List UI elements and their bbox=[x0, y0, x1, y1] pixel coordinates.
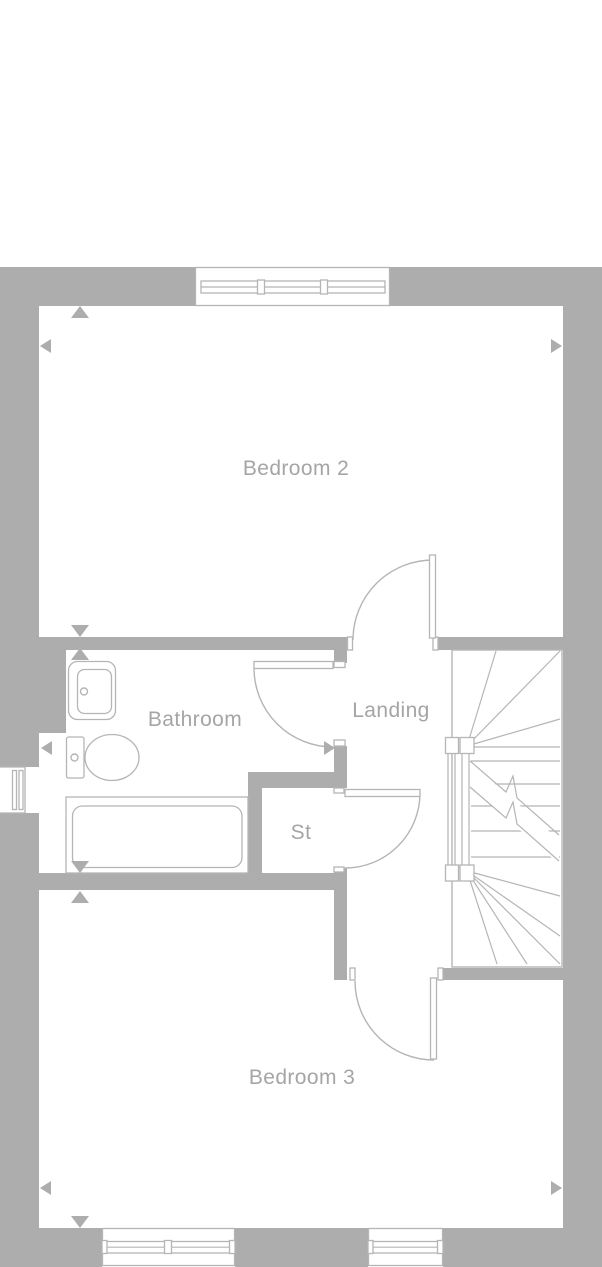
staircase bbox=[446, 650, 563, 967]
bedroom2-door-jamb-right bbox=[433, 637, 438, 650]
bottom-wall-mid-segment bbox=[235, 1228, 368, 1267]
floorplan-drawing: Bedroom 2 Bathroom Landing St Bedroom 3 bbox=[0, 0, 602, 1267]
bedroom3-window-small bbox=[368, 1229, 443, 1266]
doors bbox=[254, 555, 437, 1060]
bathroom-fixtures bbox=[66, 662, 248, 874]
bedroom3-door-jamb-left bbox=[350, 968, 355, 980]
top-wall-left-segment bbox=[0, 267, 195, 306]
toilet-bowl bbox=[85, 735, 139, 781]
bottom-wall-right-segment bbox=[443, 1228, 602, 1267]
bedroom2-dim-arrow-down bbox=[71, 625, 89, 637]
bedroom3-dim-arrow-up bbox=[71, 891, 89, 903]
landing-label: Landing bbox=[352, 699, 430, 722]
bathtub-inner bbox=[73, 806, 243, 868]
bathroom-door-jamb-top bbox=[334, 662, 345, 668]
stairs-newel-top-inner bbox=[460, 738, 474, 754]
storage-west-wall bbox=[248, 772, 262, 890]
stairs-break-symbol bbox=[470, 761, 559, 864]
top-wall-right-segment bbox=[390, 267, 602, 306]
bedroom3-window-small-endcap-left bbox=[368, 1241, 373, 1254]
bedroom3-door bbox=[355, 978, 437, 1060]
bathroom-dim-arrow-left bbox=[41, 741, 52, 755]
bathroom-label: Bathroom bbox=[148, 708, 242, 731]
toilet-icon bbox=[67, 735, 140, 781]
stairs-top-winders bbox=[467, 651, 560, 747]
bedroom3-door-leaf bbox=[431, 978, 437, 1059]
bedroom2-dim-arrow-left bbox=[40, 339, 51, 353]
bathroom-west-thick-wall bbox=[39, 637, 66, 733]
bedroom2-door-leaf bbox=[430, 555, 436, 638]
bedroom3-dim-arrow-right bbox=[551, 1181, 562, 1195]
left-wall-upper bbox=[0, 306, 39, 767]
stairs-bottom-wall bbox=[443, 968, 563, 980]
sink-basin-outline bbox=[78, 670, 112, 714]
bedroom2-door-swing-arc bbox=[353, 560, 433, 640]
toilet-cistern bbox=[67, 737, 85, 778]
bedroom2-divider-wall-left bbox=[0, 637, 352, 650]
stairs-newel-top-outer bbox=[446, 738, 459, 754]
bedroom3-dim-arrow-left bbox=[40, 1181, 51, 1195]
bathroom-st-middle-stub bbox=[334, 746, 347, 788]
bedroom3-door-swing-arc bbox=[355, 981, 434, 1060]
door-jambs bbox=[334, 637, 443, 980]
bathroom-window-glazing-2 bbox=[19, 771, 23, 810]
bedroom3-window-large-endcap-left bbox=[102, 1241, 107, 1254]
bedroom2-window-mullion-1 bbox=[258, 280, 265, 294]
bedroom3-window-large-mullion bbox=[165, 1241, 172, 1254]
stairs-bottom-winders bbox=[467, 871, 560, 964]
storage-door-swing-arc bbox=[345, 793, 420, 868]
bedroom3-door-jamb-right bbox=[438, 968, 443, 980]
bedroom3-window-large bbox=[102, 1229, 235, 1266]
stairs-handrails bbox=[446, 738, 475, 882]
bathtub-icon bbox=[66, 797, 248, 873]
bedroom3-window-small-endcap-right bbox=[438, 1241, 444, 1254]
bedroom3-dim-arrow-down bbox=[71, 1216, 89, 1228]
stairs-newel-bottom-inner bbox=[460, 865, 474, 881]
bedroom3-window-large-endcap-right bbox=[230, 1241, 236, 1254]
bottom-wall-left-segment bbox=[0, 1228, 102, 1267]
bedroom2-window bbox=[196, 268, 390, 306]
bathroom-door-swing-arc bbox=[254, 668, 333, 747]
storage-door-jamb-top bbox=[334, 788, 344, 793]
bedroom3-label: Bedroom 3 bbox=[249, 1066, 355, 1089]
bathroom-window-glazing-1 bbox=[13, 771, 17, 810]
storage-door-leaf bbox=[345, 790, 420, 797]
right-wall bbox=[563, 306, 602, 1267]
floorplan-canvas: Bedroom 2 Bathroom Landing St Bedroom 3 bbox=[0, 0, 602, 1267]
bedroom2-divider-wall-right bbox=[433, 637, 563, 650]
storage-door bbox=[345, 790, 420, 869]
bedroom2-window-mullion-2 bbox=[321, 280, 328, 294]
storage-door-jamb-bottom bbox=[334, 867, 344, 872]
bathroom-door bbox=[254, 662, 333, 748]
stairs-newel-bottom-outer bbox=[446, 865, 459, 881]
bedroom2-dim-arrow-right bbox=[551, 339, 562, 353]
sink-icon bbox=[69, 662, 116, 720]
bathroom-bottom-wall bbox=[0, 873, 347, 890]
bedroom2-door bbox=[353, 555, 436, 640]
bedroom2-dim-arrow-up bbox=[71, 306, 89, 318]
bathroom-door-jamb-bottom bbox=[334, 740, 345, 746]
storage-label: St bbox=[291, 821, 312, 844]
bathroom-window bbox=[0, 767, 25, 813]
bedroom2-label: Bedroom 2 bbox=[243, 457, 349, 480]
bathroom-door-leaf bbox=[254, 662, 333, 669]
bedroom2-door-jamb-left bbox=[348, 637, 353, 650]
